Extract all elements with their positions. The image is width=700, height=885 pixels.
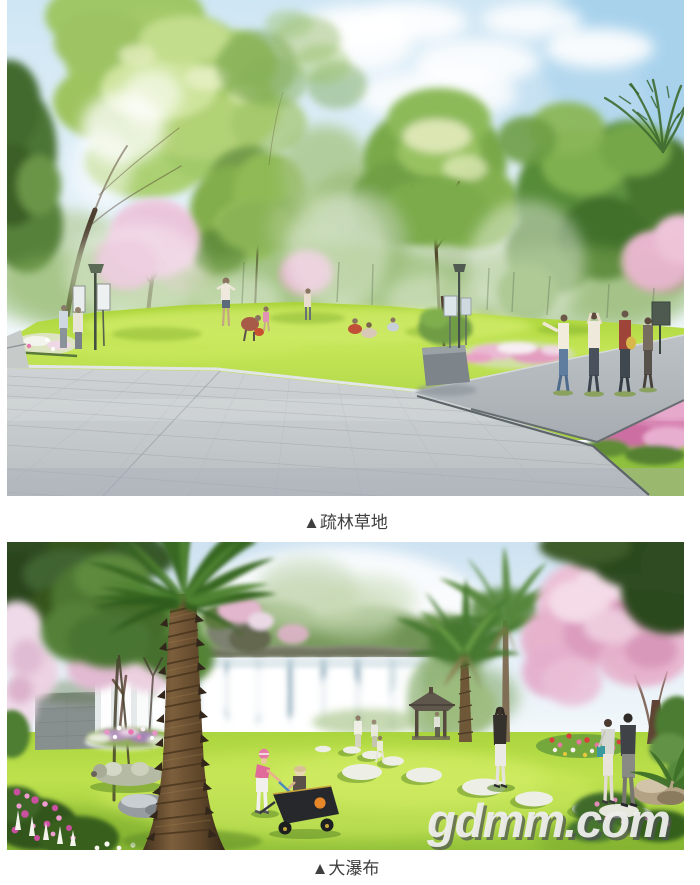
svg-text:gdmm.com: gdmm.com bbox=[426, 794, 670, 847]
